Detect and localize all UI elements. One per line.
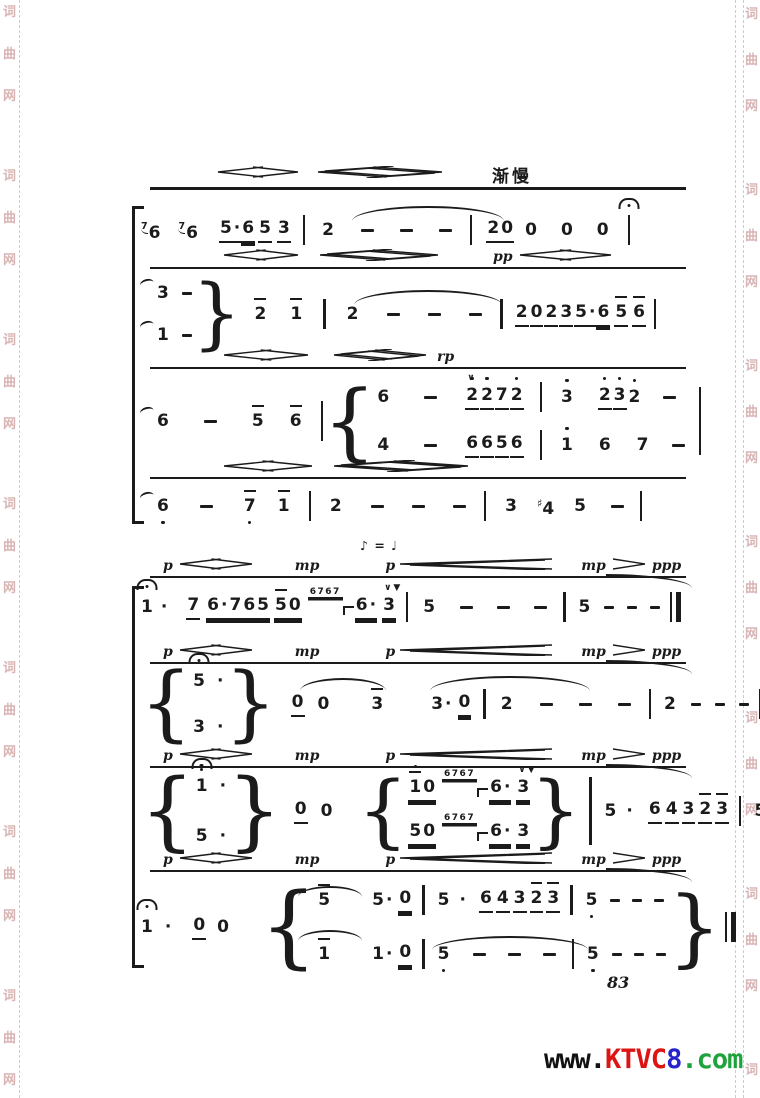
duration-dash [611,505,624,508]
watermark-character: 网 [3,910,16,923]
spacer [320,756,384,757]
jianpu-note: 5 [437,889,451,911]
spacer [254,756,294,757]
jianpu-note: 3 [560,386,574,408]
watermark-character: 词 [745,1064,758,1077]
spacer [150,566,162,567]
jianpu-note: 0 [398,887,412,913]
jianpu-note: 1 [156,324,170,346]
voice-stack: {62∨272323246656167 [323,379,699,463]
duration-dash [428,313,441,316]
spacer [400,314,428,315]
logo-segment: www. [544,1046,605,1073]
spacer [600,954,612,955]
crescendo-hairpin-icon [216,166,300,178]
jianpu-note: 5 [495,432,509,458]
spacer [538,230,560,231]
watermark-character: 词 [3,170,16,183]
jianpu-note: 6 [480,432,494,458]
jianpu-note: 5 [274,594,288,620]
spacer [622,954,634,955]
jianpu-note: 2 [480,384,494,410]
jianpu-note: 2 [698,798,712,824]
spacer [291,506,309,507]
spacer [514,704,540,705]
spacer [172,927,192,928]
watermark-character: 网 [3,1074,16,1087]
jianpu-note: 3 [504,495,518,517]
watermark-character: 网 [745,628,758,641]
voice-rows: 62∨272323246656167 [376,382,698,460]
watermark-character: 曲 [3,212,16,225]
spacer [206,727,216,728]
barline [406,592,408,622]
decrescendo-hairpin-icon [611,852,647,864]
voice-brace: { [140,768,195,854]
fermata-icon [618,198,639,209]
notation-row: 46656167 [376,430,698,460]
jianpu-note: 6 [206,594,220,620]
notation-row: 55·05·643235 [317,885,665,915]
voice-brace: } [227,768,282,854]
dynamic-marking: ppp [651,559,682,573]
jianpu-note: 3∨▼ [516,776,530,802]
jianpu-note: 3 [192,716,206,738]
spacer [574,230,596,231]
jianpu-note: 5 [219,217,233,243]
voice-brace: } [668,885,721,969]
notation-row: 656 [140,406,323,436]
jianpu-note: 6 [156,410,170,432]
octave-bar [244,490,256,492]
jianpu-note: 3 [613,384,627,410]
duration-dash [361,229,374,232]
jianpu-note: · [216,716,224,738]
barline [628,215,630,245]
jianpu-note: 5 [192,670,206,692]
spacer [150,652,162,653]
jianpu-note: 5 [573,495,587,517]
breath-mark: ∨▼ [384,577,402,599]
jianpu-note: 1 [317,943,331,965]
voice-stack: {1·5·} [140,768,282,854]
slur-tail-icon [139,277,155,290]
spacer [592,811,604,812]
spacer [330,704,370,705]
spacer [574,445,598,446]
jianpu-note: 4 [665,798,679,824]
jianpu-note: 7 [495,384,509,410]
octave-dot-below [161,521,164,524]
duration-dash [663,396,676,399]
octave-dot-below [590,915,593,918]
decrescendo-hairpin-icon [611,558,647,570]
notation-row: 0033·022 [277,689,760,719]
duration-dash [739,703,749,706]
barline [654,299,656,329]
music-system-8: 1·00{55·05·64323511·055} [140,884,688,970]
jianpu-note: 0 [458,691,472,717]
tempo-equivalence: ♪ = ♩ [360,538,398,553]
spacer [241,314,253,315]
jianpu-note: 3 [546,887,560,913]
logo-segment: 8 [666,1046,681,1073]
jianpu-note: 5 [753,800,760,822]
notation-row: 3 [140,278,192,308]
spacer [320,652,384,653]
spacer [624,506,640,507]
spacer [428,357,436,358]
jianpu-note: 5 [586,943,600,965]
jianpu-note: 2 [663,693,677,715]
duration-dash [618,703,631,706]
spacer [331,900,371,901]
jianpu-note: 5 [574,301,588,327]
voice-brace: { [140,663,192,745]
watermark-character: 曲 [3,376,16,389]
jianpu-note: 5 [604,800,618,822]
spacer [554,652,580,653]
jianpu-note: 0 [288,594,302,620]
breath-mark: ∨▼ [518,759,536,781]
spacer [170,293,182,294]
watermark-character: 词 [745,888,758,901]
spacer [646,314,654,315]
watermark-character: 词 [745,360,758,373]
spacer [685,445,699,446]
jianpu-note: 6 [489,820,503,846]
jianpu-note: 0 [291,691,305,717]
duration-dash [424,444,437,447]
duration-dash [632,899,642,902]
spacer [161,230,177,231]
dynamic-marking: ppp [651,853,682,867]
voice-rows: 5·3· [192,666,224,742]
jianpu-note: 2∨ [465,384,479,410]
spacer [396,607,406,608]
slur-tail-icon [139,319,155,332]
duration-dash [400,229,413,232]
octave-bar [275,589,287,591]
jianpu-note: 3 [430,693,444,715]
duration-dash [200,505,213,508]
page-number: 83 [607,973,629,992]
decrescendo-hairpin-icon [611,644,647,656]
watermark-character: 网 [3,746,16,759]
spacer [518,506,536,507]
spacer [300,173,316,174]
spacer [257,506,277,507]
spacer [150,468,222,469]
octave-bar [547,882,559,884]
dynamic-marking: mp [294,559,321,573]
spacer [209,786,219,787]
watermark-character: 词 [745,184,758,197]
spacer [510,607,534,608]
jianpu-note: · [369,594,377,620]
duration-dash [508,953,521,956]
spacer [168,607,186,608]
spacer [524,445,540,446]
dynamics-row: pmppmpppp [150,556,686,578]
spacer [451,900,459,901]
octave-bar [633,296,645,298]
jianpu-note: · [625,800,633,822]
voice-rows: 55·05·64323511·055 [317,885,665,969]
dashed-guide-line [743,0,744,1098]
jianpu-note: · [160,596,168,618]
spacer [359,314,387,315]
spacer [425,900,437,901]
spacer [521,954,543,955]
spacer [598,900,610,901]
octave-bar [290,405,302,407]
notation-row: 00 [282,796,358,826]
spacer [150,173,216,174]
spacer [610,230,628,231]
watermark-character: 曲 [745,934,758,947]
notation-row: 5· [192,666,224,696]
spacer [320,566,384,567]
octave-dot-below [248,521,251,524]
spacer [311,506,329,507]
spacer [634,811,648,812]
jianpu-note: 3 [715,798,729,824]
voice-stack: {5·3·} [140,663,277,745]
fermata-icon [191,758,212,769]
spacer [574,954,586,955]
spacer [440,257,492,258]
dynamic-marking: mp [580,749,607,763]
dynamic-marking: ppp [651,749,682,763]
jianpu-note: · [459,889,467,911]
ornament-figure: 6767 [308,587,343,598]
dynamic-marking: p [384,645,396,659]
phrase-marking-row [150,160,686,190]
duration-dash [439,229,452,232]
spacer [486,506,504,507]
duration-dash [540,703,553,706]
spacer [412,900,422,901]
fermata-icon [136,899,157,910]
spacer [573,900,585,901]
spacer [170,335,182,336]
octave-bar [278,490,290,492]
jianpu-note: 6 [510,432,524,458]
jianpu-note: · [216,670,224,692]
final-barline [670,592,681,622]
notation-row: 62∨2723232 [376,382,698,412]
octave-bar [699,793,711,795]
jianpu-note: · [233,217,241,243]
watermark-character: 网 [745,276,758,289]
watermark-character: 词 [3,6,16,19]
jianpu-note: 3 [516,820,530,846]
spacer [302,607,308,608]
spacer [390,397,424,398]
spacer [642,900,654,901]
voice-brace: { [357,771,408,851]
watermark-character: 网 [3,254,16,267]
jianpu-note: 2 [598,384,612,410]
duration-dash [371,505,384,508]
jianpu-note: · [220,594,228,620]
voice-brace: { [323,379,376,463]
jianpu-note: 0 [317,693,331,715]
octave-dot-below [591,969,594,972]
jianpu-note: · [164,916,172,938]
jianpu-note: 5 [422,596,436,618]
duration-dash [672,444,685,447]
jianpu-note: 2 [329,495,343,517]
barline [303,215,305,245]
watermark-character: 曲 [745,54,758,67]
jianpu-note: 5 [258,217,272,243]
spacer [277,704,291,705]
jianpu-note: · [444,693,452,715]
jianpu-note: 5 [195,825,209,847]
jianpu-note: 5 [578,596,592,618]
jianpu-note: 0 [398,941,412,967]
watermark-character: 曲 [3,868,16,881]
jianpu-note: 2 [510,384,524,410]
spacer [213,506,243,507]
barline [589,777,591,845]
octave-dot-above [565,379,568,382]
octave-bar [252,405,264,407]
spacer [199,230,219,231]
jianpu-note: 2 [253,303,267,325]
jianpu-note: 1 [195,775,209,797]
spacer [303,314,323,315]
voice-rows: 31 [140,278,192,350]
jianpu-note: 2 [346,303,360,325]
jianpu-note: 3 [277,217,291,243]
spacer [617,811,625,812]
dynamic-marking: mp [580,645,607,659]
spacer [343,506,371,507]
fermata-icon [189,653,210,664]
spacer [473,607,497,608]
watermark-character: 网 [3,418,16,431]
jianpu-note: · [588,301,596,327]
spacer [555,506,573,507]
watermark-character: 词 [3,498,16,511]
jianpu-note: 0 [530,301,544,327]
jianpu-note: 3∨▼ [382,594,396,620]
notation-row: 5067676·3 [408,818,530,848]
dynamic-marking: rp [436,350,455,364]
duration-dash [579,703,592,706]
jianpu-note: 6 [596,301,610,327]
jianpu-note: 7 [243,495,257,517]
spacer [254,652,294,653]
jianpu-note: 6 [242,594,256,620]
duration-dash [610,899,620,902]
notation-row: 5·643235 [581,796,760,826]
spacer [291,230,303,231]
jianpu-note: 0 [320,800,334,822]
spacer [254,566,294,567]
jianpu-note: 0 [294,798,308,824]
spacer [729,811,739,812]
spacer [436,833,442,834]
notation-row: 67123♯45 [140,491,642,521]
voice-stack: {1067676·3∨▼5067676·3} [357,771,581,851]
jianpu-note: 1 [289,303,303,325]
octave-bar [409,771,421,773]
music-system-5: 1·76·7655067676·3∨▼55 [140,585,688,629]
notation-row: 1·76·7655067676·3∨▼55 [140,592,681,622]
duration-dash [650,606,660,609]
barline [540,382,542,412]
duration-dash [412,505,425,508]
slur-tail-icon [139,405,155,418]
spacer [425,954,437,955]
spacer [581,811,589,812]
spacer [556,954,572,955]
jianpu-note: 1 [140,916,154,938]
spacer [412,954,422,955]
duration-dash [654,899,664,902]
breath-mark: ∨ [467,367,476,389]
spacer [308,811,320,812]
sharp-icon: ♯ [537,497,542,510]
sheet-music-page: 词曲网词曲网词曲网词曲网词曲网词曲网词曲网词曲网词曲网词曲网词曲网词曲网词曲网词… [0,0,760,1098]
watermark-character: 词 [745,8,758,21]
music-system-3: 656{62∨272323246656167 [140,385,688,457]
octave-dot-above [485,377,488,380]
jianpu-note: · [503,776,511,802]
spacer [591,607,604,608]
jianpu-note: 2 [628,386,642,408]
spacer [436,789,442,790]
duration-dash [387,313,400,316]
duration-dash [460,606,473,609]
duration-dash [182,292,192,295]
watermark-character: 网 [745,980,758,993]
spacer [384,704,430,705]
spacer [154,927,164,928]
spacer [554,566,580,567]
jianpu-note: 6 [648,798,662,824]
spacer [390,445,424,446]
duration-dash [473,953,486,956]
spacer [503,314,515,315]
jianpu-note: 3 [513,887,527,913]
watermark-character: 曲 [3,1032,16,1045]
spacer [305,230,321,231]
fermata-icon [136,579,157,590]
notation-row [699,406,701,436]
barline [309,491,311,521]
spacer [413,230,439,231]
spacer [170,421,204,422]
spacer [320,860,384,861]
spacer [547,607,563,608]
spacer [644,954,656,955]
spacer [467,900,479,901]
jianpu-note: 4 [496,887,510,913]
watermark-character: 曲 [745,406,758,419]
spacer [701,704,715,705]
jianpu-note: 0 [216,916,230,938]
jianpu-note: 2 [530,887,544,913]
watermark-character: 曲 [3,704,16,717]
duration-dash [182,334,192,337]
spacer [741,811,753,812]
spacer [310,357,332,358]
